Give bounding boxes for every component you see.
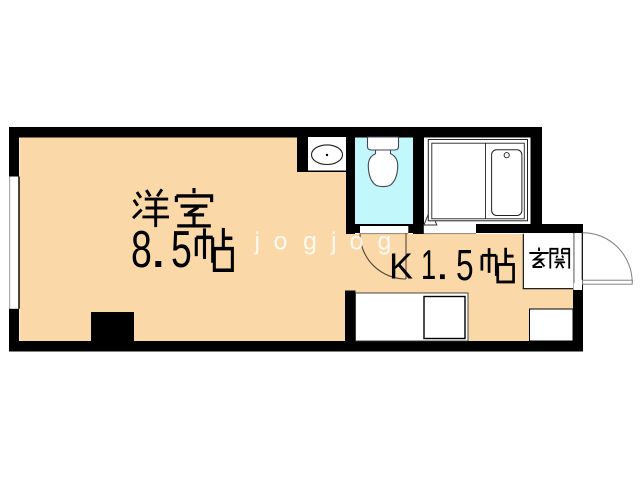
svg-text:o: o	[350, 228, 364, 256]
svg-text:5: 5	[456, 241, 474, 290]
svg-text:g: g	[303, 228, 317, 256]
svg-text:j: j	[330, 228, 337, 256]
svg-text:o: o	[274, 228, 288, 256]
svg-text:1: 1	[421, 241, 436, 288]
svg-text:8: 8	[131, 220, 152, 279]
svg-text:5: 5	[171, 220, 192, 279]
svg-text:j: j	[254, 228, 261, 256]
svg-text:K: K	[389, 246, 413, 287]
